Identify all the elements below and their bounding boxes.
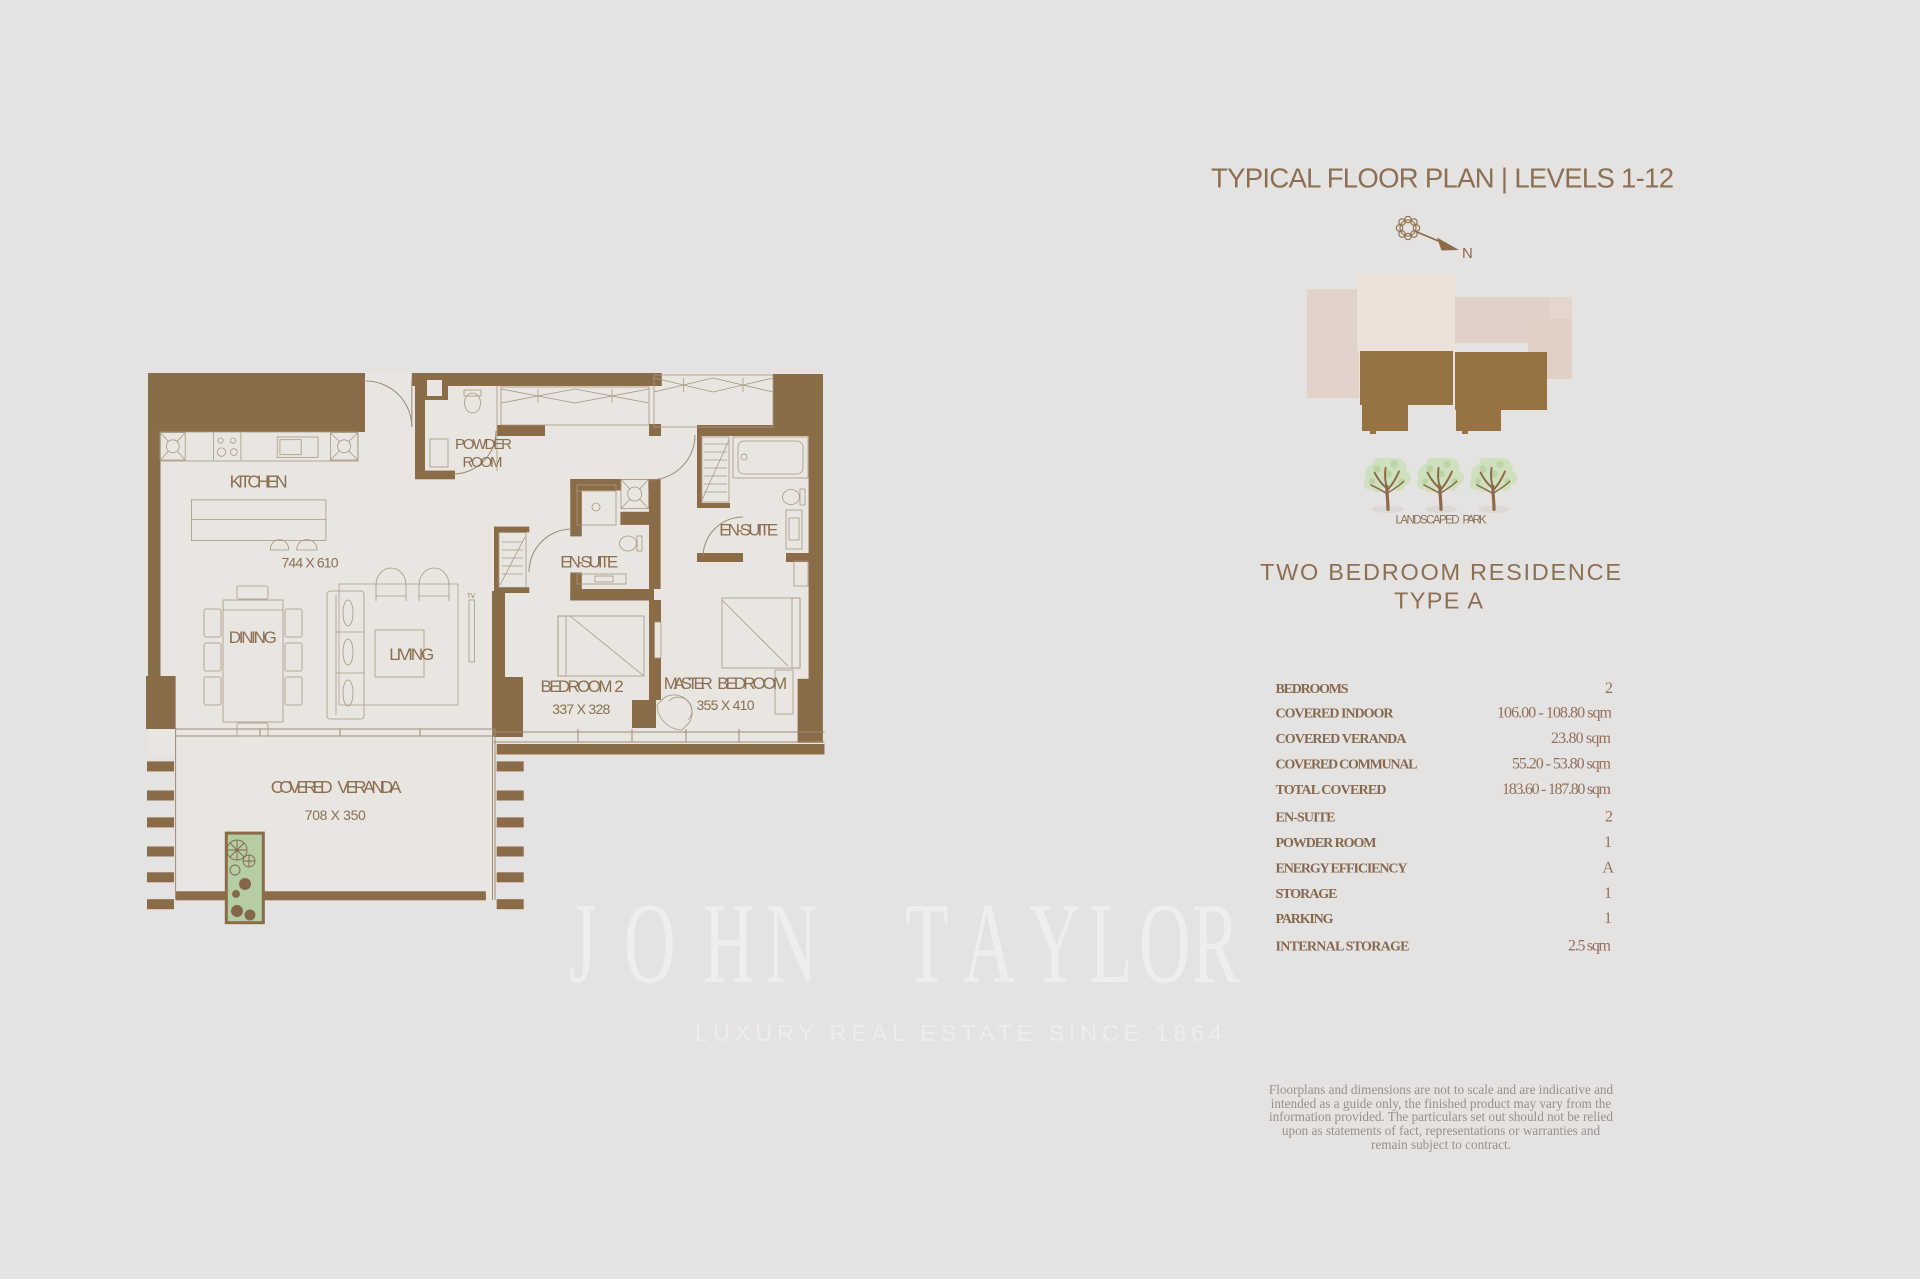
svg-text:Y: Y — [1029, 880, 1080, 1007]
svg-text:TWO BEDROOM RESIDENCE: TWO BEDROOM RESIDENCE — [1260, 559, 1621, 585]
svg-text:1: 1 — [1604, 834, 1612, 851]
svg-text:STORAGE: STORAGE — [1276, 887, 1338, 902]
svg-text:A: A — [1602, 860, 1614, 877]
svg-text:O: O — [1139, 880, 1190, 1007]
svg-text:J: J — [569, 880, 597, 1007]
svg-text:1: 1 — [1604, 910, 1612, 927]
svg-text:23.80 sqm: 23.80 sqm — [1551, 730, 1612, 747]
svg-text:BEDROOMS: BEDROOMS — [1276, 682, 1349, 697]
svg-text:183.60 - 187.80 sqm: 183.60 - 187.80 sqm — [1502, 781, 1612, 798]
svg-text:EN-SUITE: EN-SUITE — [1276, 811, 1336, 826]
svg-text:PARKING: PARKING — [1276, 912, 1334, 927]
svg-text:N: N — [1462, 245, 1473, 262]
svg-text:A: A — [963, 880, 1014, 1007]
svg-text:POWDER ROOM: POWDER ROOM — [1276, 836, 1377, 851]
svg-text:PARK: PARK — [1463, 515, 1487, 527]
svg-text:ENERGY EFFICIENCY: ENERGY EFFICIENCY — [1276, 862, 1408, 877]
svg-text:L: L — [1089, 880, 1133, 1007]
svg-text:COVERED INDOOR: COVERED INDOOR — [1276, 707, 1395, 722]
svg-text:TYPICAL FLOOR PLAN | LEVELS 1-: TYPICAL FLOOR PLAN | LEVELS 1-12 — [1211, 163, 1674, 194]
svg-text:O: O — [624, 880, 675, 1007]
svg-text:TYPE A: TYPE A — [1394, 588, 1483, 614]
svg-text:2.5 sqm: 2.5 sqm — [1568, 938, 1612, 955]
svg-text:N: N — [766, 880, 817, 1007]
svg-text:55.20 - 53.80 sqm: 55.20 - 53.80 sqm — [1512, 756, 1612, 773]
svg-text:INTERNAL STORAGE: INTERNAL STORAGE — [1276, 940, 1410, 955]
svg-text:1: 1 — [1604, 885, 1612, 902]
svg-text:H: H — [703, 880, 754, 1007]
svg-text:LANDSCAPED: LANDSCAPED — [1396, 515, 1460, 527]
svg-text:106.00 - 108.80 sqm: 106.00 - 108.80 sqm — [1497, 705, 1613, 722]
svg-text:R: R — [1192, 880, 1240, 1007]
svg-text:T: T — [905, 880, 949, 1007]
svg-text:LUXURY REAL ESTATE SINCE 1864: LUXURY REAL ESTATE SINCE 1864 — [695, 1020, 1222, 1046]
svg-text:TOTAL COVERED: TOTAL COVERED — [1276, 783, 1387, 798]
svg-text:2: 2 — [1605, 680, 1613, 697]
svg-text:COVERED COMMUNAL: COVERED COMMUNAL — [1276, 758, 1418, 773]
svg-text:COVERED VERANDA: COVERED VERANDA — [1276, 732, 1408, 747]
svg-text:2: 2 — [1605, 809, 1613, 826]
